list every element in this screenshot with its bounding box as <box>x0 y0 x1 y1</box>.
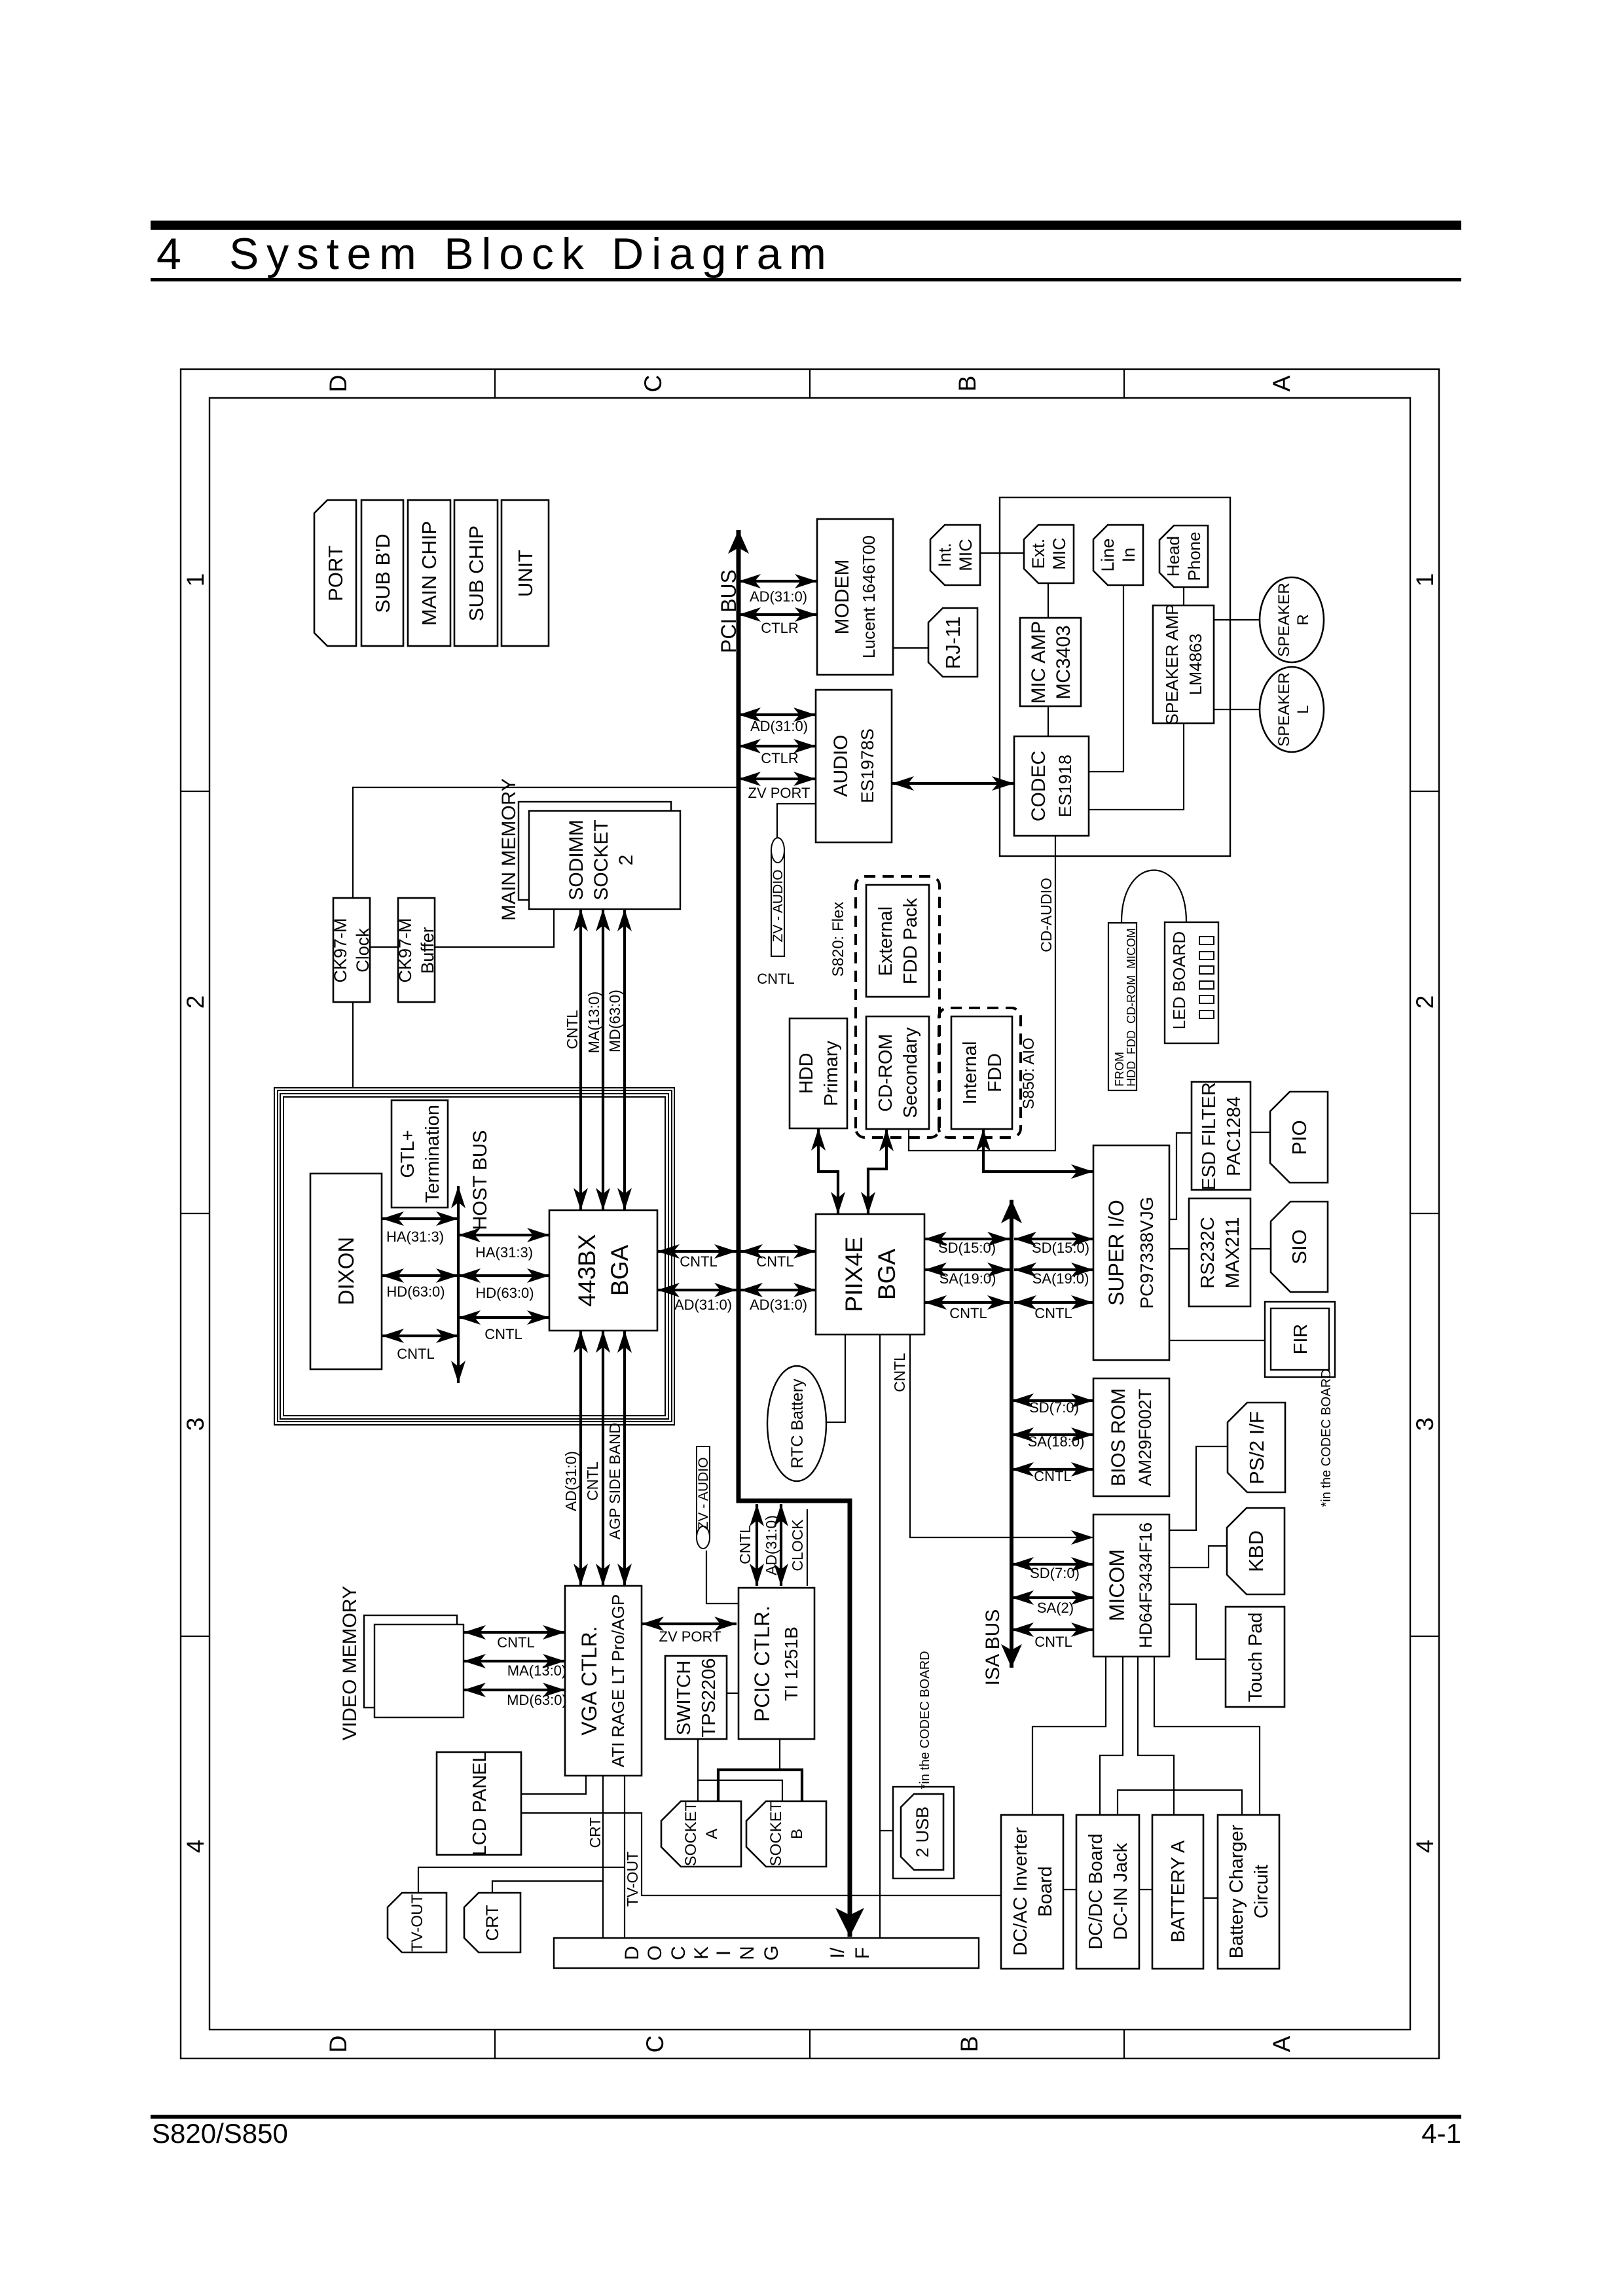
svg-text:SPEAKER: SPEAKER <box>1275 672 1293 746</box>
svg-text:2: 2 <box>615 855 637 866</box>
svg-text:HDD: HDD <box>796 1053 817 1094</box>
svg-text:TV-OUT: TV-OUT <box>624 1852 641 1907</box>
svg-text:HD64F3434F16: HD64F3434F16 <box>1136 1522 1156 1648</box>
svg-text:N: N <box>737 1946 758 1960</box>
svg-text:A: A <box>703 1829 721 1839</box>
svg-text:SA(2): SA(2) <box>1037 1600 1074 1616</box>
svg-text:MIC: MIC <box>956 539 976 571</box>
svg-text:RS232C: RS232C <box>1197 1217 1218 1289</box>
svg-text:MICOM: MICOM <box>1105 1549 1129 1621</box>
svg-text:CNTL: CNTL <box>1034 1634 1072 1650</box>
svg-text:VIDEO MEMORY: VIDEO MEMORY <box>339 1586 361 1740</box>
svg-text:CD-AUDIO: CD-AUDIO <box>1038 878 1055 952</box>
svg-text:2: 2 <box>1412 996 1438 1009</box>
svg-text:CNTL: CNTL <box>564 1010 581 1049</box>
svg-text:HD(63:0): HD(63:0) <box>386 1283 445 1300</box>
svg-text:PS/2 I/F: PS/2 I/F <box>1245 1411 1268 1484</box>
svg-text:CTLR: CTLR <box>761 750 798 766</box>
svg-text:CNTL: CNTL <box>756 1253 793 1270</box>
svg-text:SUB B'D: SUB B'D <box>371 533 394 613</box>
svg-text:ESD FILTER: ESD FILTER <box>1199 1082 1220 1190</box>
svg-text:C: C <box>668 1946 689 1960</box>
svg-text:CNTL: CNTL <box>1034 1468 1071 1484</box>
svg-text:SOCKET: SOCKET <box>591 819 612 900</box>
svg-text:AD(31:0): AD(31:0) <box>750 1297 807 1313</box>
svg-text:FDD Pack: FDD Pack <box>900 897 921 984</box>
svg-text:Circuit: Circuit <box>1251 1865 1272 1918</box>
svg-text:S820: Flex: S820: Flex <box>830 902 847 977</box>
svg-text:CK97-M: CK97-M <box>395 918 415 982</box>
svg-text:ISA BUS: ISA BUS <box>982 1609 1004 1686</box>
svg-text:VGA CTLR.: VGA CTLR. <box>577 1626 601 1735</box>
svg-text:CNTL: CNTL <box>1034 1305 1072 1321</box>
svg-text:PCI BUS: PCI BUS <box>717 569 740 653</box>
svg-text:G: G <box>761 1945 782 1960</box>
svg-text:UNIT: UNIT <box>514 550 537 597</box>
svg-text:SA(19:0): SA(19:0) <box>1032 1270 1089 1287</box>
svg-text:CRT: CRT <box>483 1905 502 1941</box>
svg-text:1: 1 <box>1412 573 1438 587</box>
svg-text:Lucent 1646T00: Lucent 1646T00 <box>859 535 879 658</box>
svg-text:B: B <box>788 1829 806 1839</box>
svg-text:*in the CODEC BOARD: *in the CODEC BOARD <box>1319 1369 1334 1507</box>
svg-text:DIXON: DIXON <box>334 1237 358 1306</box>
svg-text:PORT: PORT <box>324 545 347 601</box>
svg-text:AD(31:0): AD(31:0) <box>763 1515 780 1575</box>
svg-text:Clock: Clock <box>353 928 373 973</box>
svg-text:ZV - AUDIO: ZV - AUDIO <box>696 1458 711 1530</box>
svg-text:CNTL: CNTL <box>584 1462 601 1501</box>
svg-text:Buffer: Buffer <box>418 927 437 974</box>
svg-text:SD(15:0): SD(15:0) <box>1032 1240 1089 1256</box>
svg-text:SD(15:0): SD(15:0) <box>938 1240 996 1256</box>
svg-text:TPS2206: TPS2206 <box>699 1659 720 1738</box>
svg-text:4-1: 4-1 <box>1421 2118 1461 2149</box>
svg-text:MAIN MEMORY: MAIN MEMORY <box>498 778 520 921</box>
svg-text:CLOCK: CLOCK <box>789 1519 806 1571</box>
svg-text:ATI RAGE LT Pro/AGP: ATI RAGE LT Pro/AGP <box>608 1594 628 1767</box>
svg-text:PAC1284: PAC1284 <box>1224 1096 1245 1176</box>
svg-text:A: A <box>1268 2036 1295 2052</box>
svg-text:SD(7:0): SD(7:0) <box>1030 1565 1080 1581</box>
svg-text:CRT: CRT <box>587 1818 604 1848</box>
svg-text:LED BOARD: LED BOARD <box>1169 931 1189 1030</box>
svg-text:LM4863: LM4863 <box>1186 634 1205 695</box>
svg-text:HD(63:0): HD(63:0) <box>475 1285 534 1301</box>
svg-text:RJ-11: RJ-11 <box>941 617 964 669</box>
svg-text:HA(31:3): HA(31:3) <box>386 1229 444 1245</box>
svg-text:I/: I/ <box>827 1947 848 1958</box>
svg-text:DC/AC Inverter: DC/AC Inverter <box>1010 1827 1031 1956</box>
svg-text:ES1918: ES1918 <box>1055 755 1075 817</box>
svg-text:AD(31:0): AD(31:0) <box>750 588 807 605</box>
svg-text:AD(31:0): AD(31:0) <box>562 1451 579 1511</box>
svg-text:PCIC CTLR.: PCIC CTLR. <box>750 1605 774 1722</box>
svg-text:CD-ROM: CD-ROM <box>875 1033 896 1111</box>
svg-text:Board: Board <box>1035 1866 1056 1916</box>
svg-text:443BX: 443BX <box>574 1234 600 1306</box>
svg-text:D: D <box>325 2036 352 2053</box>
svg-text:MAX211: MAX211 <box>1222 1217 1243 1288</box>
svg-text:Battery Charger: Battery Charger <box>1226 1824 1247 1958</box>
svg-text:BGA: BGA <box>606 1245 633 1296</box>
svg-text:O: O <box>644 1945 666 1960</box>
svg-text:CNTL: CNTL <box>497 1634 534 1651</box>
svg-text:SUPER I/O: SUPER I/O <box>1104 1200 1128 1306</box>
svg-text:Int.: Int. <box>935 543 955 567</box>
svg-text:In: In <box>1119 548 1139 563</box>
svg-text:SOCKET: SOCKET <box>682 1801 700 1866</box>
svg-text:MIC: MIC <box>1049 537 1069 570</box>
svg-text:DC/DC Board: DC/DC Board <box>1085 1833 1106 1949</box>
svg-text:CNTL: CNTL <box>484 1326 522 1342</box>
svg-text:AD(31:0): AD(31:0) <box>750 718 808 734</box>
svg-text:ZV - AUDIO: ZV - AUDIO <box>771 870 786 942</box>
svg-text:Ext.: Ext. <box>1029 539 1048 569</box>
svg-text:SPEAKER AMP: SPEAKER AMP <box>1162 604 1182 725</box>
svg-text:BIOS ROM: BIOS ROM <box>1108 1388 1129 1486</box>
svg-text:FROM: FROM <box>1113 1052 1126 1086</box>
svg-text:CNTL: CNTL <box>397 1346 434 1362</box>
svg-text:TI 1251B: TI 1251B <box>781 1626 801 1701</box>
svg-text:SA(18:0): SA(18:0) <box>1028 1433 1085 1450</box>
svg-text:AGP SIDE BAND: AGP SIDE BAND <box>606 1423 623 1540</box>
svg-text:4: 4 <box>182 1840 209 1854</box>
svg-text:MC3403: MC3403 <box>1053 625 1074 699</box>
svg-text:SWITCH: SWITCH <box>674 1660 695 1735</box>
svg-text:L: L <box>1294 705 1312 713</box>
svg-text:SIO: SIO <box>1288 1229 1311 1264</box>
svg-text:KBD: KBD <box>1245 1530 1267 1572</box>
svg-text:Primary: Primary <box>821 1041 842 1106</box>
svg-text:SA(19:0): SA(19:0) <box>939 1270 996 1287</box>
svg-text:CODEC: CODEC <box>1028 751 1049 821</box>
svg-text:AM29F002T: AM29F002T <box>1135 1389 1155 1486</box>
svg-text:SUB CHIP: SUB CHIP <box>465 526 488 621</box>
svg-text:4: 4 <box>1412 1840 1438 1854</box>
svg-text:ES1978S: ES1978S <box>858 728 877 803</box>
svg-text:Head: Head <box>1163 536 1183 577</box>
svg-text:SD(7:0): SD(7:0) <box>1029 1399 1079 1416</box>
svg-text:FDD: FDD <box>985 1053 1006 1092</box>
svg-text:CNTL: CNTL <box>757 971 794 987</box>
svg-text:D: D <box>325 375 352 393</box>
svg-text:ZV PORT: ZV PORT <box>659 1628 721 1645</box>
svg-text:ZV PORT: ZV PORT <box>748 785 811 801</box>
svg-text:MA(13:0): MA(13:0) <box>585 992 602 1054</box>
svg-text:AUDIO: AUDIO <box>830 734 852 797</box>
svg-text:S820/S850: S820/S850 <box>152 2118 288 2149</box>
svg-text:CNTL: CNTL <box>737 1525 754 1564</box>
svg-text:BATTERY A: BATTERY A <box>1168 1840 1189 1943</box>
svg-text:CK97-M: CK97-M <box>331 918 350 982</box>
svg-text:B: B <box>954 376 981 392</box>
svg-text:Line: Line <box>1098 538 1118 571</box>
svg-text:C: C <box>642 2036 668 2053</box>
svg-text:RTC Battery: RTC Battery <box>788 1378 807 1469</box>
svg-text:AD(31:0): AD(31:0) <box>674 1297 732 1313</box>
svg-text:K: K <box>691 1946 712 1960</box>
svg-text:2: 2 <box>182 996 209 1009</box>
svg-text:BGA: BGA <box>873 1249 900 1300</box>
svg-text:F: F <box>852 1947 873 1959</box>
svg-text:SOCKET: SOCKET <box>767 1801 785 1866</box>
svg-text:CNTL: CNTL <box>680 1253 717 1270</box>
svg-text:Internal: Internal <box>960 1041 981 1105</box>
svg-text:R: R <box>1294 614 1312 625</box>
svg-text:A: A <box>1268 375 1295 391</box>
svg-text:PIO: PIO <box>1288 1120 1311 1155</box>
svg-text:MIC AMP: MIC AMP <box>1028 621 1049 704</box>
svg-text:PIIX4E: PIIX4E <box>841 1236 867 1312</box>
svg-text:1: 1 <box>182 573 209 587</box>
svg-text:CTLR: CTLR <box>761 620 798 636</box>
svg-text:CNTL: CNTL <box>949 1305 987 1321</box>
svg-text:2 USB: 2 USB <box>913 1806 932 1857</box>
svg-text:4 System Block Diagram: 4 System Block Diagram <box>156 229 834 279</box>
svg-text:MA(13:0): MA(13:0) <box>507 1662 566 1679</box>
svg-text:*in the CODEC BOARD: *in the CODEC BOARD <box>918 1651 932 1789</box>
svg-text:PC97338VJG: PC97338VJG <box>1137 1196 1157 1308</box>
svg-text:HDD FDD CD-ROM MICOM: HDD FDD CD-ROM MICOM <box>1125 928 1138 1086</box>
svg-text:S850: AIO: S850: AIO <box>1020 1037 1038 1109</box>
svg-text:HA(31:3): HA(31:3) <box>475 1244 533 1261</box>
svg-text:LCD PANEL: LCD PANEL <box>469 1751 490 1856</box>
svg-text:FIR: FIR <box>1290 1324 1311 1355</box>
svg-text:TV-OUT: TV-OUT <box>409 1894 426 1952</box>
svg-text:SPEAKER: SPEAKER <box>1275 583 1293 656</box>
svg-text:Touch Pad: Touch Pad <box>1245 1612 1266 1702</box>
svg-text:GTL+: GTL+ <box>397 1130 418 1177</box>
svg-text:MAIN CHIP: MAIN CHIP <box>418 521 441 626</box>
svg-text:CNTL: CNTL <box>891 1353 908 1392</box>
svg-text:SODIMM: SODIMM <box>566 819 587 900</box>
svg-text:I: I <box>713 1950 735 1956</box>
svg-text:DC-IN Jack: DC-IN Jack <box>1110 1842 1131 1940</box>
svg-text:C: C <box>640 375 666 393</box>
svg-text:MD(63:0): MD(63:0) <box>507 1692 567 1708</box>
svg-text:B: B <box>956 2036 983 2053</box>
svg-text:MODEM: MODEM <box>831 560 853 635</box>
svg-text:3: 3 <box>1412 1418 1438 1431</box>
svg-text:Secondary: Secondary <box>900 1027 921 1118</box>
svg-text:MD(63:0): MD(63:0) <box>606 990 623 1052</box>
svg-text:Phone: Phone <box>1184 531 1204 581</box>
svg-text:3: 3 <box>182 1418 209 1431</box>
svg-text:HOST BUS: HOST BUS <box>469 1130 491 1230</box>
svg-text:Termination: Termination <box>422 1105 443 1203</box>
svg-text:External: External <box>875 906 896 976</box>
svg-text:D: D <box>621 1946 643 1960</box>
